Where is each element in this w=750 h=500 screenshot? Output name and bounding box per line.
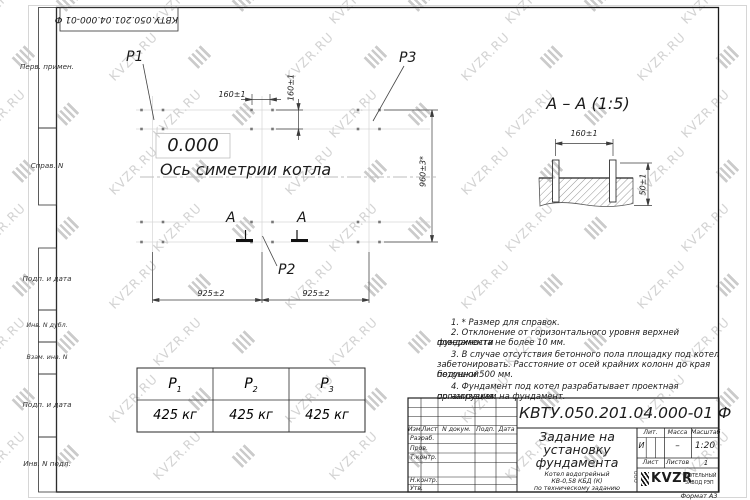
dim-span-right: 925±2 (295, 289, 337, 298)
dim-span-left: 925±2 (190, 289, 232, 298)
tb-header-izm: Изм. (408, 426, 421, 434)
stamp-inv-podl: Инв. N подл. (0, 457, 102, 471)
anchor-bolt-left (553, 160, 560, 202)
load-table-value-p1: 425 кг (137, 400, 213, 432)
section-letter-right: A (297, 210, 307, 226)
note-line: подушки 500 мм. (437, 370, 733, 380)
subtitle-line: по техническому заданию (517, 485, 637, 492)
tb-sheets-value: 1 (700, 459, 712, 467)
dim-plan-height: 960±3* (419, 152, 428, 192)
tb-row-razrab: Разраб. (410, 435, 434, 443)
tb-row-utv: Утв. (410, 485, 423, 493)
stamp-inv-dubl: Инв. N дубл. (0, 319, 102, 333)
tb-header-list: Лист (421, 426, 438, 434)
point-label-p3: P3 (399, 50, 416, 66)
tb-row-nkontr: Н.контр. (410, 477, 438, 485)
anchor-bolt-right (610, 160, 617, 202)
tb-scale-header: Масштаб (691, 429, 719, 437)
tb-lit-header: Лит. (637, 429, 664, 437)
stamp-vzam-inv: Взам. инв. N (0, 351, 102, 365)
tb-sheet-label: Лист (637, 459, 664, 467)
subtitle-line: КВ-0,58 КБД (К) (517, 478, 637, 485)
boiler-axis-label: Ось симетрии котла (160, 160, 331, 179)
section-title: A – A (1:5) (538, 94, 638, 113)
logo-caption-line: КОТЕЛЬНЫЙ (685, 474, 716, 479)
logo-ooo-text: ООО (635, 466, 640, 488)
tb-row-prov: Пров. (410, 445, 428, 453)
tb-row-tkontr: Т.контр. (410, 454, 437, 462)
section-view (539, 139, 652, 207)
load-table-header-p3: P3 (289, 368, 365, 400)
title-block-doc-number: КВТУ.050.201.04.000-01 Ф (519, 399, 717, 427)
subtitle-line: Котел водогрейный (517, 471, 637, 478)
kvzr-logo-icon (641, 472, 649, 486)
format-label: Формат А3 (669, 492, 729, 500)
tb-header-podp: Подп. (475, 426, 496, 434)
stamp-sprav-n: Справ. N (0, 159, 102, 173)
point-label-p2: P2 (278, 262, 295, 278)
stamp-podp-data-1: Подп. и дата (0, 272, 102, 286)
load-table-value-p2: 425 кг (213, 400, 289, 432)
dim-section-height: 50±1 (639, 167, 648, 203)
tb-sheets-label: Листов (666, 459, 696, 467)
note-line: фундамента не более 10 мм. (437, 338, 733, 348)
section-cut-marks (236, 230, 308, 241)
stamp-podp-data-2: Подп. и дата (0, 398, 102, 412)
dim-bolt-spacing-vertical: 160±1 (287, 69, 296, 107)
corner-doc-number: КВТУ.050.201.04.000-01 Ф (60, 7, 178, 31)
tb-scale-value: 1:20 (691, 441, 719, 451)
load-table-value-p3: 425 кг (289, 400, 365, 432)
tb-header-data: Дата (496, 426, 517, 434)
load-table-header-p2: P2 (213, 368, 289, 400)
tb-header-ndokum: N докум. (438, 426, 475, 434)
load-table-header-p1: P1 (137, 368, 213, 400)
tb-mass-value: – (664, 441, 691, 451)
dim-section-width: 160±1 (564, 129, 604, 138)
section-letter-left: A (226, 210, 236, 226)
stamp-perv-primen: Перв. примен. (0, 60, 102, 74)
level-mark: 0.000 (156, 134, 230, 158)
tb-lit-value: И (637, 441, 646, 450)
title-line: фундамента (517, 455, 637, 470)
logo-caption-line: ЗАВОД РЭП (685, 481, 714, 486)
tb-mass-header: Масса (664, 429, 691, 437)
drawing-sheet: КВТУ.050.201.04.000-01 Ф Перв. примен. С… (0, 0, 750, 500)
dim-bolt-spacing-horizontal: 160±1 (213, 90, 251, 99)
point-label-p1: P1 (126, 49, 143, 65)
